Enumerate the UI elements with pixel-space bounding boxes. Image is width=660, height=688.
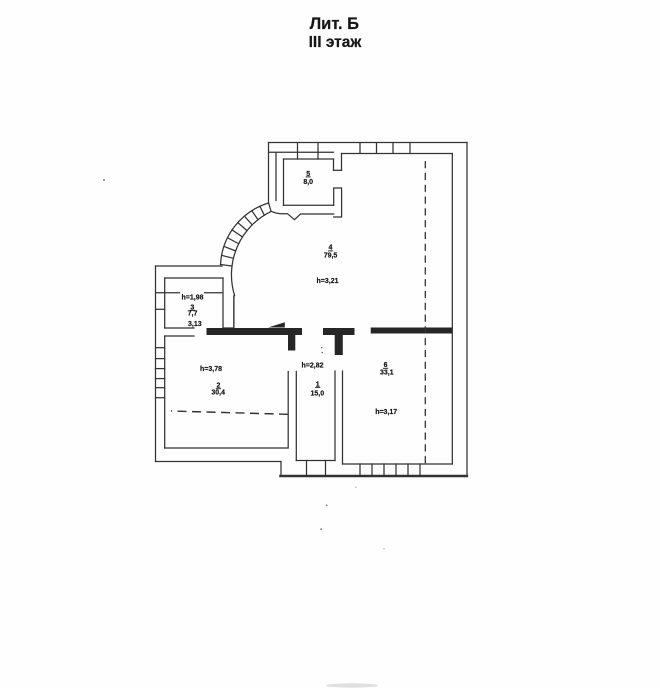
svg-text:8,0: 8,0 — [303, 179, 313, 186]
svg-text:h=2,82: h=2,82 — [302, 363, 324, 370]
svg-text:3,13: 3,13 — [188, 321, 202, 328]
svg-text:79,5: 79,5 — [324, 253, 338, 260]
svg-text:6: 6 — [384, 362, 388, 369]
svg-text:30,4: 30,4 — [211, 390, 225, 397]
svg-text:5: 5 — [306, 171, 310, 178]
svg-text:Лит. Б: Лит. Б — [310, 15, 360, 33]
svg-text:33,1: 33,1 — [380, 369, 394, 376]
svg-text:h=3,17: h=3,17 — [375, 409, 397, 416]
svg-text:h=1,98: h=1,98 — [182, 295, 204, 302]
svg-text:2: 2 — [216, 383, 220, 390]
svg-text:4: 4 — [329, 245, 333, 252]
svg-text:15,0: 15,0 — [310, 391, 324, 398]
svg-text:h=3,21: h=3,21 — [317, 278, 339, 285]
svg-text:III этаж: III этаж — [309, 34, 363, 51]
svg-text:1: 1 — [316, 381, 320, 388]
svg-text:h=3,78: h=3,78 — [200, 366, 222, 373]
svg-text:7,7: 7,7 — [188, 311, 198, 318]
